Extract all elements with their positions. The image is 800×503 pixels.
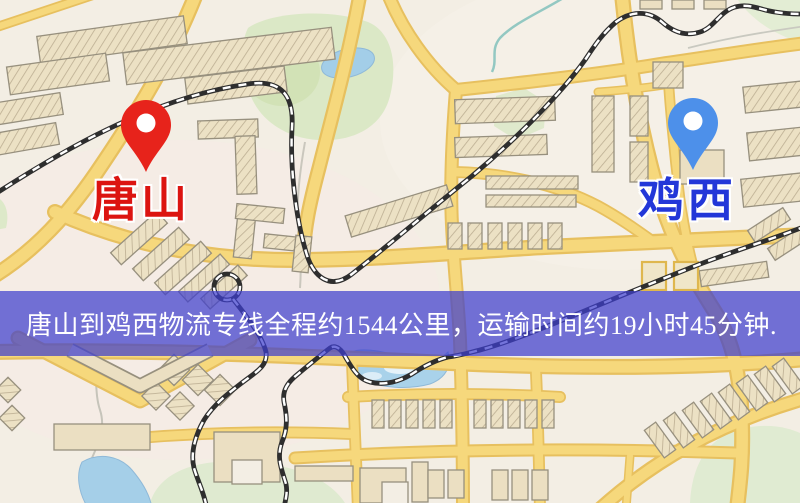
map-canvas bbox=[0, 0, 800, 503]
map-image: 唐山 鸡西 唐山到鸡西物流专线全程约1544公里，运输时间约19小时45分钟. bbox=[0, 0, 800, 503]
route-info-text: 唐山到鸡西物流专线全程约1544公里，运输时间约19小时45分钟. bbox=[26, 305, 777, 342]
origin-city-label: 唐山 bbox=[92, 178, 190, 224]
route-info-banner: 唐山到鸡西物流专线全程约1544公里，运输时间约19小时45分钟. bbox=[0, 291, 800, 356]
destination-city-label: 鸡西 bbox=[638, 178, 736, 224]
